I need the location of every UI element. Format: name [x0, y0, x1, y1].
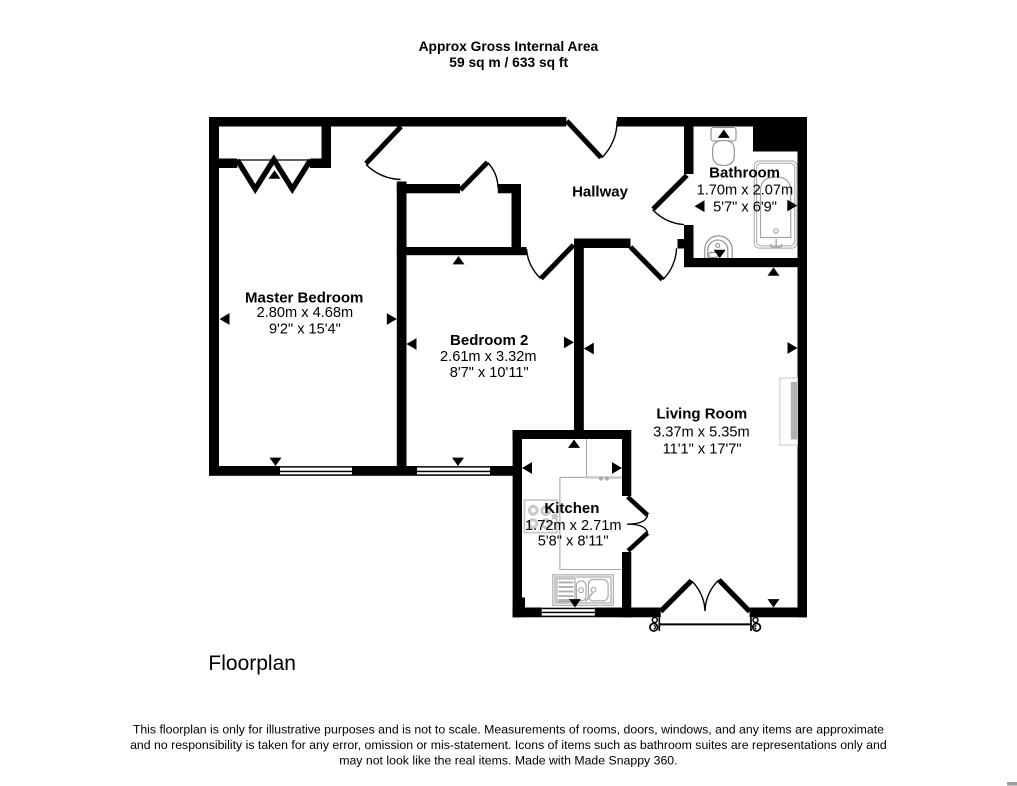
- svg-text:9'2" x 15'4": 9'2" x 15'4": [269, 321, 341, 337]
- svg-text:Bedroom 2: Bedroom 2: [450, 332, 528, 349]
- svg-text:1.70m x 2.07m: 1.70m x 2.07m: [697, 183, 794, 199]
- svg-text:and no responsibility is taken: and no responsibility is taken for any e…: [130, 738, 887, 752]
- svg-text:11'1" x 17'7": 11'1" x 17'7": [663, 441, 742, 457]
- svg-text:Kitchen: Kitchen: [544, 500, 599, 517]
- svg-text:8'7" x 10'11": 8'7" x 10'11": [450, 365, 529, 381]
- svg-text:Floorplan: Floorplan: [208, 652, 296, 675]
- svg-text:Living Room: Living Room: [656, 406, 747, 423]
- svg-text:This floorplan is only for ill: This floorplan is only for illustrative …: [133, 723, 884, 737]
- svg-text:Master Bedroom: Master Bedroom: [245, 289, 363, 306]
- svg-text:1.72m x 2.71m: 1.72m x 2.71m: [525, 518, 622, 534]
- svg-text:Bathroom: Bathroom: [709, 164, 780, 181]
- svg-text:Hallway: Hallway: [572, 183, 629, 200]
- svg-text:5'8" x 8'11": 5'8" x 8'11": [538, 533, 609, 549]
- svg-text:5'7" x 6'9": 5'7" x 6'9": [713, 199, 777, 215]
- svg-text:3.37m x 5.35m: 3.37m x 5.35m: [653, 425, 750, 441]
- svg-text:59 sq m / 633 sq ft: 59 sq m / 633 sq ft: [449, 55, 568, 70]
- svg-text:Approx Gross Internal Area: Approx Gross Internal Area: [419, 39, 599, 54]
- svg-text:may not look like the real ite: may not look like the real items. Made w…: [339, 754, 677, 768]
- svg-text:2.61m x 3.32m: 2.61m x 3.32m: [440, 349, 537, 365]
- svg-text:2.80m x 4.68m: 2.80m x 4.68m: [257, 305, 354, 321]
